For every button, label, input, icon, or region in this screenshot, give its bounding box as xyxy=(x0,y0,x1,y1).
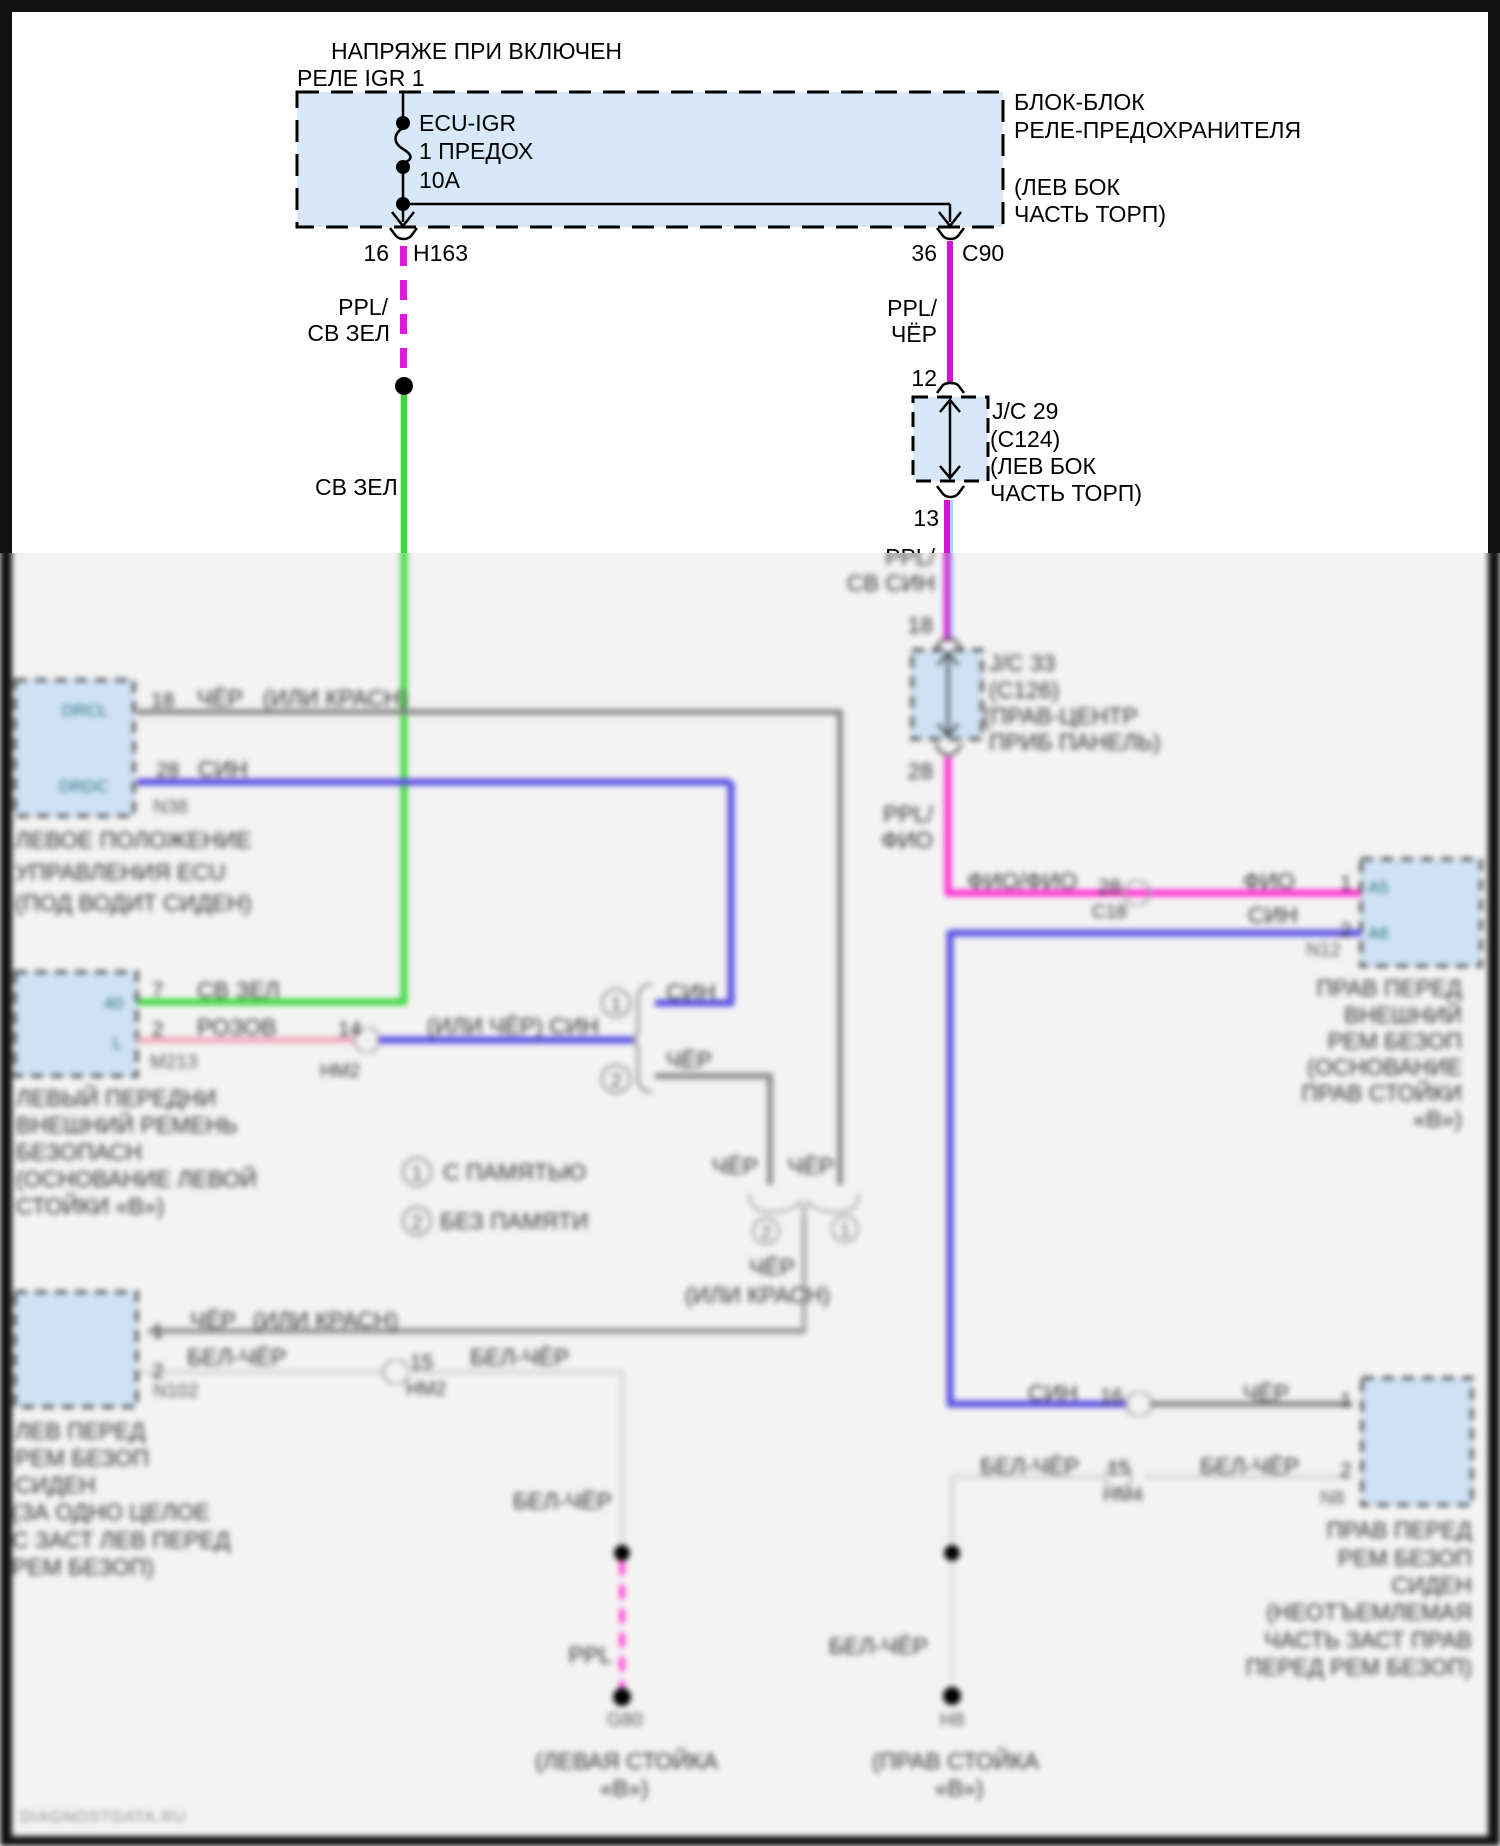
svg-text:2: 2 xyxy=(610,1070,621,1092)
svg-text:1: 1 xyxy=(411,1163,422,1185)
svg-text:2: 2 xyxy=(411,1212,422,1234)
svg-text:1: 1 xyxy=(840,1221,851,1242)
svg-text:2: 2 xyxy=(761,1223,772,1244)
svg-text:1: 1 xyxy=(610,994,621,1016)
